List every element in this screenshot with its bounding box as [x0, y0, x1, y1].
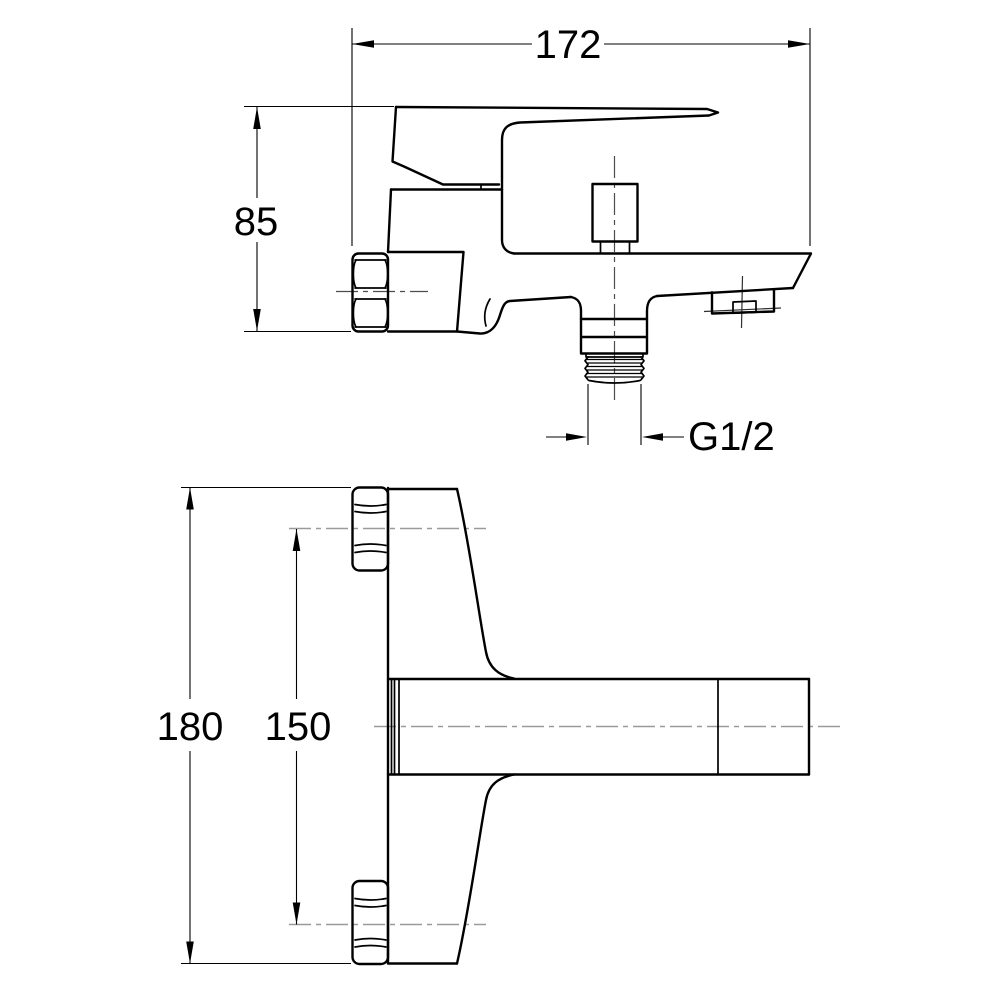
dim-g12-arrow-left	[566, 433, 587, 441]
inlet-nut-bottom	[353, 881, 389, 964]
dim-label-85: 85	[234, 200, 279, 244]
plan-centerlines	[289, 529, 841, 925]
plan-body-top-taper	[457, 489, 514, 679]
body-underside-left	[457, 297, 571, 334]
handle-lever	[393, 107, 719, 254]
dim-180-arrow-bottom	[186, 942, 194, 964]
dim-label-180: 180	[157, 705, 224, 749]
dim-85-arrow-top	[253, 107, 261, 129]
plan-body-bottom-taper	[457, 775, 514, 964]
body-left-edge	[388, 190, 391, 253]
handle-base-outline	[393, 107, 500, 185]
dim-g12-arrow-right	[642, 433, 663, 441]
deck-edge	[514, 254, 811, 289]
side-centerlines	[336, 156, 781, 400]
wall-nut-outline	[353, 254, 389, 332]
handle-lever-outline	[396, 107, 718, 254]
inlet-nut-bottom-outline	[353, 881, 389, 964]
dim-150-arrow-top	[293, 529, 301, 551]
dim-85-arrow-bottom	[253, 309, 261, 331]
spout-underside	[657, 288, 793, 296]
dim-150-arrow-bottom	[293, 903, 301, 925]
drawing-canvas: 172 85 G1/2	[0, 0, 1000, 1000]
inlet-nut-bottom-facets	[355, 899, 386, 948]
dim-label-172: 172	[535, 23, 602, 67]
dim-label-g12: G1/2	[688, 415, 775, 459]
wall-nut-barrel-arcs	[353, 260, 387, 327]
wall-nut	[353, 254, 389, 332]
body-accent-arc	[485, 299, 490, 326]
wall-nut-facet-lines	[355, 260, 386, 327]
dimension-deck-height: 85	[234, 107, 394, 332]
dim-172-arrow-left	[352, 40, 374, 48]
side-view: 172 85 G1/2	[234, 23, 811, 459]
dim-180-arrow-top	[186, 488, 194, 510]
faucet-technical-drawing: 172 85 G1/2	[0, 0, 1000, 1000]
spout-body	[457, 254, 811, 334]
dimension-outlet-thread: G1/2	[546, 384, 775, 459]
dim-label-150: 150	[265, 705, 332, 749]
dim-172-arrow-right	[788, 40, 810, 48]
top-view: 180 150	[157, 488, 841, 965]
dimension-connection-centers: 150	[265, 529, 332, 925]
plan-body	[388, 488, 514, 964]
dimension-spout-reach: 172	[352, 23, 810, 246]
